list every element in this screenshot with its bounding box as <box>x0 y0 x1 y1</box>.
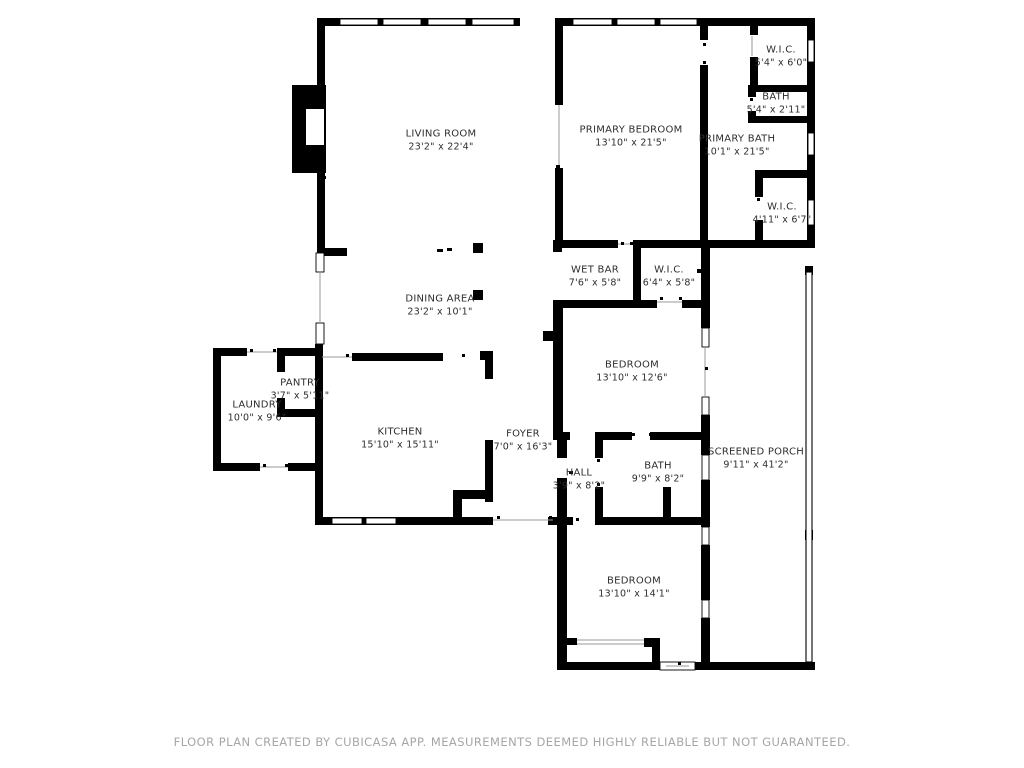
room-label-screened-porch: SCREENED PORCH 9'11" x 41'2" <box>708 447 804 472</box>
room-label-living-room: LIVING ROOM 23'2" x 22'4" <box>406 129 477 154</box>
room-label-foyer: FOYER 7'0" x 16'3" <box>494 429 553 454</box>
floor-plan-page: LIVING ROOM 23'2" x 22'4" PRIMARY BEDROO… <box>0 0 1024 768</box>
room-label-bath-main: BATH 9'9" x 8'2" <box>632 461 685 486</box>
door-ticks-layer <box>250 32 760 665</box>
disclaimer-text: FLOOR PLAN CREATED BY CUBICASA APP. MEAS… <box>174 735 851 749</box>
room-label-primary-bedroom: PRIMARY BEDROOM 13'10" x 21'5" <box>580 125 683 150</box>
room-label-dining-area: DINING AREA 23'2" x 10'1" <box>405 294 474 319</box>
room-label-kitchen: KITCHEN 15'10" x 15'11" <box>361 427 439 452</box>
fireplace <box>292 85 326 173</box>
room-label-bedroom-mid: BEDROOM 13'10" x 12'6" <box>596 360 667 385</box>
room-label-hall: HALL 3'9" x 8'2" <box>553 468 606 493</box>
room-label-wet-bar: WET BAR 7'6" x 5'8" <box>569 265 622 290</box>
floor-plan-drawing <box>0 0 1024 768</box>
room-label-bedroom-bottom: BEDROOM 13'10" x 14'1" <box>598 576 669 601</box>
room-label-laundry: LAUNDRY 10'0" x 9'6" <box>228 400 287 425</box>
room-label-bath-small: BATH 5'4" x 2'11" <box>747 92 806 117</box>
room-label-wic-right: W.I.C. 4'11" x 6'7" <box>753 202 812 227</box>
screen-wall <box>806 272 812 662</box>
room-label-wic-top: W.I.C. 5'4" x 6'0" <box>755 45 808 70</box>
room-label-wic-mid: W.I.C. 6'4" x 5'8" <box>643 265 696 290</box>
room-label-primary-bath: PRIMARY BATH 10'1" x 21'5" <box>699 134 776 159</box>
